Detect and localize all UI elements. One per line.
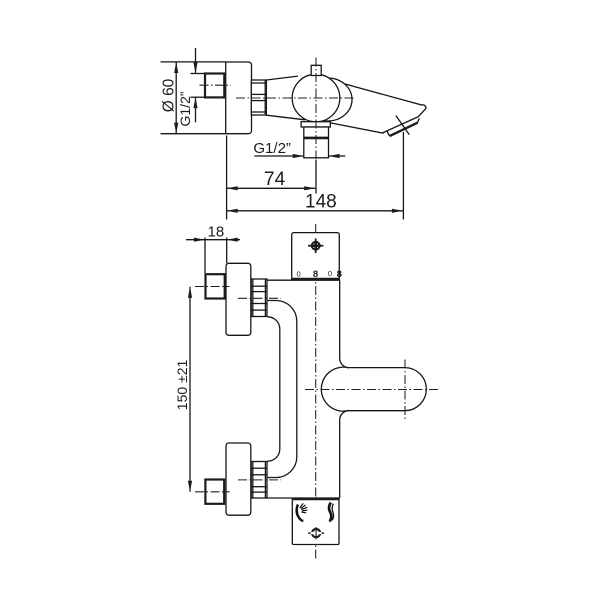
- svg-text:G1/2”: G1/2”: [253, 140, 291, 157]
- svg-text:G1/2”: G1/2”: [177, 91, 193, 126]
- svg-text:74: 74: [264, 169, 286, 190]
- svg-text:0: 0: [297, 269, 301, 278]
- svg-text:18: 18: [208, 224, 225, 241]
- svg-text:0: 0: [328, 269, 332, 278]
- svg-text:148: 148: [305, 192, 337, 213]
- svg-text:Ø 60: Ø 60: [161, 78, 178, 112]
- svg-text:8: 8: [313, 269, 318, 280]
- svg-text:150 ±21: 150 ±21: [174, 359, 190, 410]
- svg-text:8: 8: [337, 269, 342, 280]
